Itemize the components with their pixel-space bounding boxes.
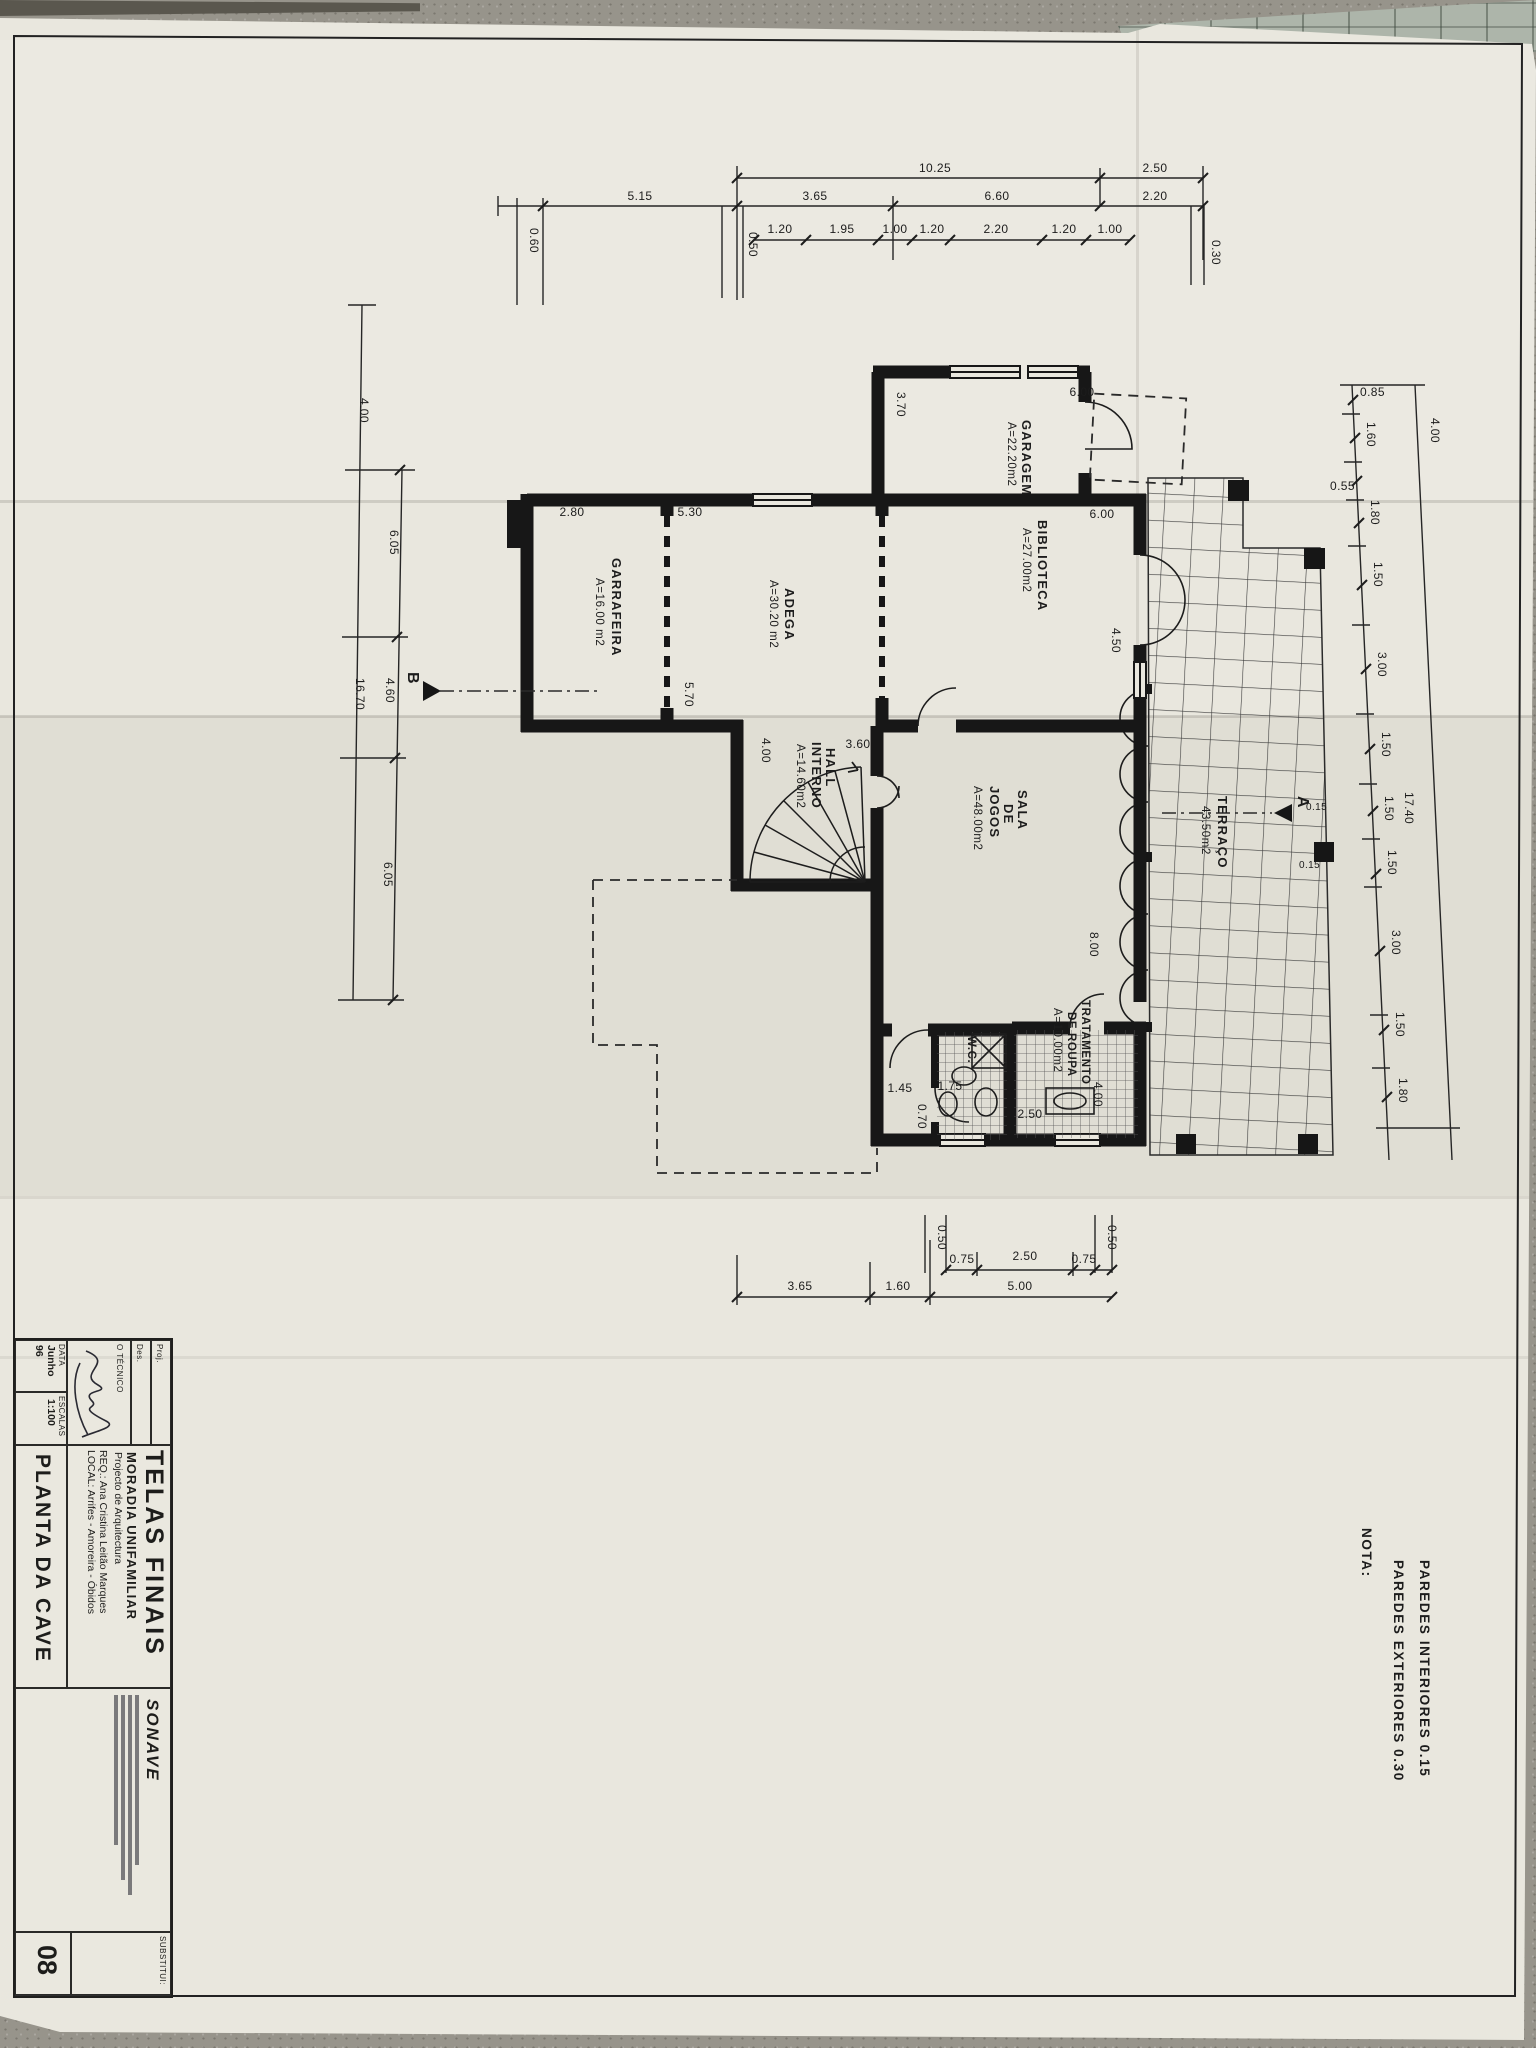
dim-label: 1.80 xyxy=(1396,1078,1410,1103)
terrace-pillar xyxy=(1304,548,1325,569)
escalas-value: 1:100 xyxy=(45,1399,57,1444)
dim-label: 1.50 xyxy=(1385,850,1399,875)
dim-label: 0.55 xyxy=(1330,479,1355,493)
data-value: Junho 96 xyxy=(33,1345,57,1391)
req-line: REQ.: Ana Cristina Leitão Marques xyxy=(97,1450,109,1687)
dim-label: 10.25 xyxy=(919,161,951,175)
room-label-adega: ADEGA xyxy=(782,588,797,641)
room-label-hall-2: INTERNO xyxy=(809,742,824,809)
room-label-sala: SALA xyxy=(1015,790,1030,830)
dim-label: 1.50 xyxy=(1393,1012,1407,1037)
sheet-number: 08 xyxy=(31,1945,62,1994)
dim-label: 1.50 xyxy=(1382,796,1396,821)
local-line: LOCAL: Arrifes - Amoreira - Óbidos xyxy=(85,1450,97,1687)
dim-label: 3.70 xyxy=(894,392,908,417)
dim-label: 5.15 xyxy=(628,189,653,203)
garage-apron xyxy=(1090,394,1186,485)
room-area-tratamento: A=10.00m2 xyxy=(1051,1008,1063,1073)
dim-label: 1.20 xyxy=(1052,222,1077,236)
dim-label: 4.60 xyxy=(383,678,397,703)
dim-label: 2.20 xyxy=(1143,189,1168,203)
dim-label: 3.65 xyxy=(803,189,828,203)
staircase xyxy=(750,762,865,882)
dim-label: 17.40 xyxy=(1402,792,1416,824)
dim-label: 1.80 xyxy=(1368,500,1382,525)
stamp-illegible-line xyxy=(128,1695,132,1895)
room-label-tratamento: TRATAMENTO xyxy=(1079,1000,1091,1085)
dim-label: 4.00 xyxy=(357,398,371,423)
note-title: NOTA: xyxy=(1359,1528,1374,1578)
room-label-sala-2: DE xyxy=(1001,804,1016,824)
room-area-biblioteca: A=27.00m2 xyxy=(1020,528,1032,593)
dim-label: 1.75 xyxy=(938,1079,963,1093)
dim-label: 1.50 xyxy=(1371,562,1385,587)
dim-label: 16.70 xyxy=(353,678,367,710)
dim-label: 0.75 xyxy=(1072,1252,1097,1266)
dim-label: 2.50 xyxy=(1018,1107,1043,1121)
dim-label: 6.00 xyxy=(1070,385,1095,399)
dim-label: 5.30 xyxy=(678,505,703,519)
dim-label: 3.00 xyxy=(1389,930,1403,955)
room-area-garagem: A=22.20m2 xyxy=(1005,422,1017,487)
room-area-terraco: 43.50m2 xyxy=(1199,806,1211,855)
sheet-title: TELAS FINAIS xyxy=(139,1450,168,1687)
room-label-biblioteca: BIBLIOTECA xyxy=(1035,520,1050,611)
dim-label: 5.70 xyxy=(682,682,696,707)
dim-label: 6.05 xyxy=(381,862,395,887)
room-label-tratamento-2: DE ROUPA xyxy=(1065,1012,1077,1077)
room-label-hall: HALL xyxy=(823,748,838,787)
dim-label: 0.15 xyxy=(1299,860,1320,871)
dim-label: 4.00 xyxy=(759,738,773,763)
dim-label: 6.00 xyxy=(1090,507,1115,521)
room-label-terraco: TERRAÇO xyxy=(1215,796,1230,869)
dim-label: 6.60 xyxy=(985,189,1010,203)
room-label-garagem: GARAGEM xyxy=(1019,420,1034,496)
room-label-wc: W.C. xyxy=(965,1036,977,1063)
stamp-company: SONAVE xyxy=(142,1699,162,1931)
room-area-garrafeira: A=16.00 m2 xyxy=(593,578,605,646)
dim-label: 1.20 xyxy=(768,222,793,236)
terrace-pillar xyxy=(1314,842,1334,862)
escalas-label: ESCALAS xyxy=(57,1396,66,1444)
dim-label: 1.45 xyxy=(888,1081,913,1095)
dim-label: 0.85 xyxy=(1360,385,1385,399)
drawing-title: PLANTA DA CAVE xyxy=(30,1454,54,1687)
note-block: NOTA: PAREDES EXTERIORES 0.30 PAREDES IN… xyxy=(1359,1528,1432,1782)
dim-label: 1.60 xyxy=(1364,422,1378,447)
dim-label: 2.50 xyxy=(1143,161,1168,175)
dim-label: 3.60 xyxy=(846,737,871,751)
stamp-illegible-line xyxy=(114,1695,118,1845)
dim-label: 1.20 xyxy=(920,222,945,236)
room-label-sala-3: JOGOS xyxy=(987,786,1002,838)
dim-label: 2.50 xyxy=(1013,1249,1038,1263)
data-label: DATA xyxy=(57,1344,66,1391)
plan-drawing-layer: B A GARAGEM A=22.20m2 BIBLIOTECA A=27.00… xyxy=(0,0,1536,2048)
dim-label: 0.70 xyxy=(915,1104,929,1129)
room-area-hall: A=14.60m2 xyxy=(794,744,806,809)
dim-label: 1.95 xyxy=(830,222,855,236)
room-area-sala: A=48.00m2 xyxy=(971,786,983,851)
dim-label: 4.50 xyxy=(1109,628,1123,653)
dim-label: 0.50 xyxy=(935,1225,949,1250)
dim-label: 4.00 xyxy=(1428,418,1442,443)
dim-label: 0.15 xyxy=(1306,802,1327,813)
dim-label: 1.00 xyxy=(1098,222,1123,236)
project-title: MORADIA UNIFAMILIAR xyxy=(124,1452,139,1687)
dim-label: 5.00 xyxy=(1008,1279,1033,1293)
dim-label: 0.60 xyxy=(527,228,541,253)
dim-label: 6.05 xyxy=(387,530,401,555)
stamp-illegible-line xyxy=(121,1695,125,1880)
dim-label: 1.00 xyxy=(883,222,908,236)
note-line: PAREDES EXTERIORES 0.30 xyxy=(1391,1560,1406,1782)
dim-label: 0.30 xyxy=(1209,240,1223,265)
terrace-pillar xyxy=(1298,1134,1318,1154)
note-line: PAREDES INTERIORES 0.15 xyxy=(1417,1560,1432,1777)
dim-label: 1.50 xyxy=(1379,732,1393,757)
des-label: Des. xyxy=(135,1344,144,1362)
stamp-illegible-line xyxy=(135,1695,139,1865)
dim-label: 4.00 xyxy=(1091,1082,1105,1107)
dim-label: 3.00 xyxy=(1375,652,1389,677)
proj-label: Proj. xyxy=(155,1344,164,1363)
dim-label: 3.65 xyxy=(788,1279,813,1293)
section-marker-b: B xyxy=(404,672,421,684)
dim-label: 0.50 xyxy=(1105,1225,1119,1250)
room-area-adega: A=30.20 m2 xyxy=(767,580,779,648)
project-subtitle: Projecto de Arquitectura xyxy=(112,1452,124,1687)
terrace-pillar xyxy=(1228,480,1249,501)
signature xyxy=(68,1343,126,1443)
dim-label: 8.00 xyxy=(1087,932,1101,957)
dim-label: 2.80 xyxy=(560,505,585,519)
room-label-garrafeira: GARRAFEIRA xyxy=(609,558,624,657)
dim-label: 1.60 xyxy=(886,1279,911,1293)
photographed-floor-plan: { "note": { "title": "NOTA:", "lines": [… xyxy=(0,0,1536,2048)
dim-label: 0.75 xyxy=(950,1252,975,1266)
dim-label: 2.20 xyxy=(984,222,1009,236)
substitui-label: SUBSTITUI: xyxy=(158,1936,167,1994)
terrace-pillar xyxy=(1176,1134,1196,1154)
